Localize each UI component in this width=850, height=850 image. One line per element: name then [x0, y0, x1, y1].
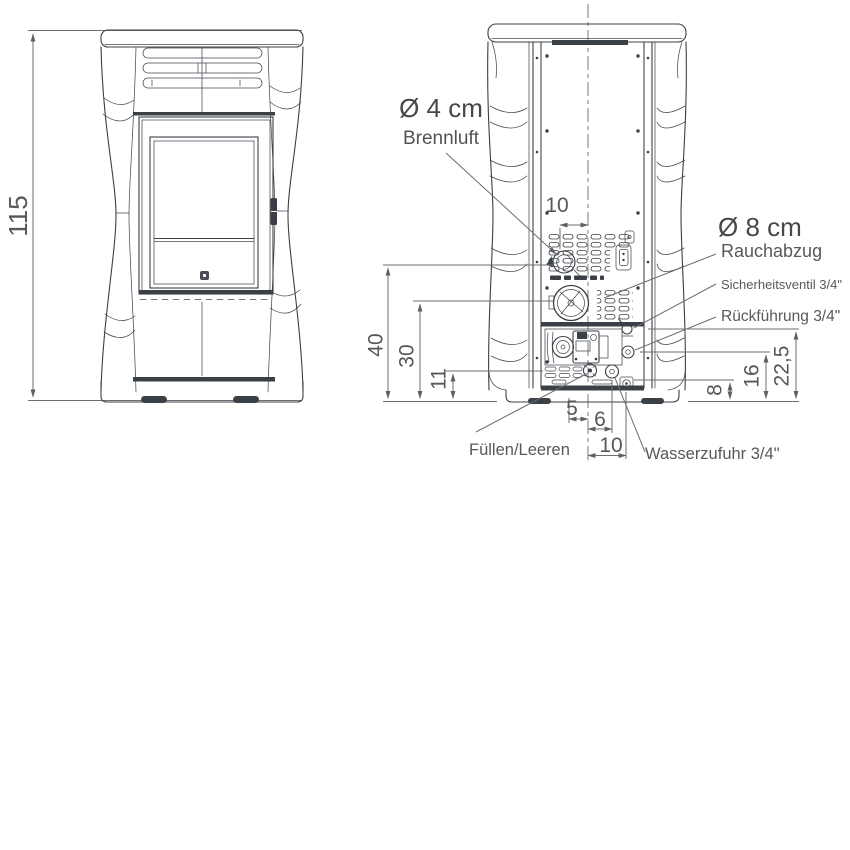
vent-slats-dark-row — [550, 276, 604, 281]
dim-5: 5 — [566, 397, 578, 420]
height-dimension-115: 115 — [3, 31, 302, 401]
label-fuellen-leeren: Füllen/Leeren — [469, 441, 570, 459]
door-latch — [271, 198, 278, 225]
dim-16: 16 — [741, 364, 764, 387]
dim-10-bottom: 10 — [599, 434, 622, 457]
rauchabzug-outlet — [549, 286, 589, 321]
front-top-cap — [101, 30, 303, 47]
vent-slats-bottom — [545, 367, 612, 384]
dim-8: 8 — [704, 384, 727, 396]
stove-technical-drawing: 115 — [0, 0, 850, 850]
dim-heights-left: 40 30 11 — [365, 265, 553, 402]
svg-text:10: 10 — [545, 194, 568, 217]
wasserzufuhr-fitting — [606, 365, 619, 378]
fuellen-leeren-fitting — [584, 364, 597, 377]
label-rueckfuehrung: Rückführung 3/4" — [721, 308, 840, 325]
dim-30: 30 — [396, 344, 419, 367]
dim-11: 11 — [428, 368, 451, 390]
dim-6: 6 — [594, 408, 606, 431]
dim-offsets-bottom: 5 6 10 — [566, 380, 626, 459]
front-view: 115 — [3, 30, 303, 403]
rear-base — [506, 390, 679, 404]
front-door — [139, 117, 277, 294]
callout-labels: Ø 4 cm Brennluft Ø 8 cm Rauchabzug Siche… — [399, 93, 842, 463]
rear-top-cap — [488, 24, 686, 42]
label-brennluft: Brennluft — [403, 128, 480, 149]
pump-assembly — [545, 329, 622, 365]
rueckfuehrung-fitting — [622, 346, 634, 358]
technical-drawing-page: 115 — [0, 0, 850, 850]
brand-logo — [200, 271, 209, 280]
label-sicherheitsventil: Sicherheitsventil 3/4" — [721, 277, 842, 292]
dim-overall-height: 115 — [3, 195, 33, 236]
label-brennluft-diameter: Ø 4 cm — [399, 93, 483, 123]
front-lower-panel — [101, 300, 303, 404]
front-air-grille — [133, 47, 275, 116]
label-rauchabzug: Rauchabzug — [721, 241, 822, 261]
dim-40: 40 — [365, 333, 388, 356]
rear-view — [488, 4, 687, 460]
vent-grid-upper — [548, 233, 632, 248]
label-rauchabzug-diameter: Ø 8 cm — [718, 212, 802, 242]
power-socket — [616, 245, 631, 270]
dim-22-5: 22,5 — [771, 346, 794, 387]
label-wasserzufuhr: Wasserzufuhr 3/4" — [645, 445, 780, 463]
